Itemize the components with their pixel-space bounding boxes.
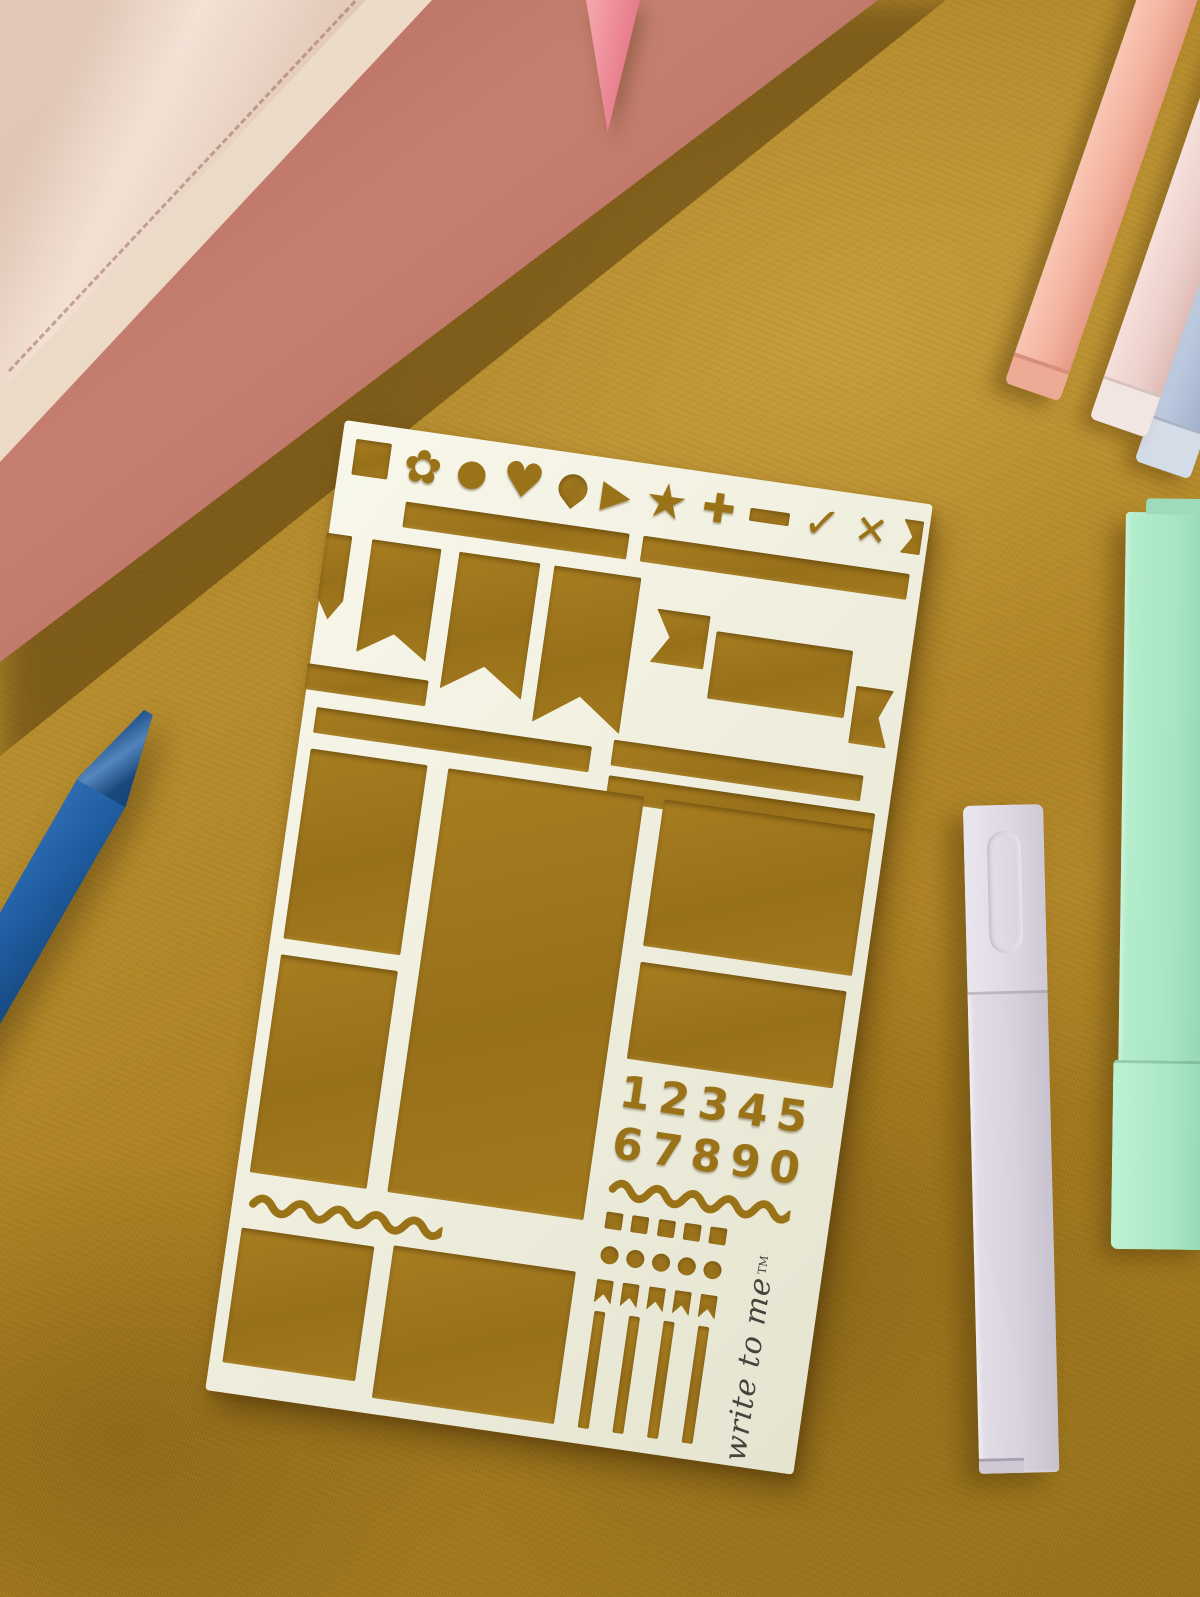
photo-stage: ✿ ● ♥ ▶ ★ ✚ ✓ ✕ <box>0 0 1200 1597</box>
square-icon <box>351 439 392 480</box>
balloon-pin-icon <box>553 468 594 509</box>
pennant-banner-medium <box>440 552 541 700</box>
dot-icon <box>651 1253 671 1273</box>
mini-flag-icon <box>620 1282 640 1308</box>
wide-box-cutout <box>643 799 873 976</box>
minus-icon <box>749 507 790 526</box>
cross-icon: ✕ <box>852 509 891 553</box>
mini-squares-row <box>604 1211 727 1245</box>
brand-text: write to me <box>717 1274 778 1463</box>
mini-dots-row <box>599 1245 722 1280</box>
flower-icon: ✿ <box>401 441 446 492</box>
small-box-cutout <box>627 962 847 1089</box>
play-triangle-icon: ▶ <box>599 474 633 516</box>
check-icon: ✓ <box>801 500 844 549</box>
mini-square-icon <box>708 1226 727 1245</box>
square-frame-cutout <box>222 1228 374 1382</box>
dot-icon <box>702 1260 722 1280</box>
circle-icon: ● <box>454 454 490 494</box>
bar-slot <box>304 663 428 706</box>
plus-icon: ✚ <box>699 487 738 531</box>
mint-marker <box>1116 512 1200 1247</box>
mini-flag-icon <box>594 1279 614 1305</box>
mint-marker-cap <box>1111 1060 1200 1250</box>
ribbon-banner-body <box>707 631 853 718</box>
stripe-slot <box>612 1316 640 1434</box>
lilac-marker-grip <box>987 831 1024 954</box>
mini-square-icon <box>682 1223 701 1242</box>
dot-icon <box>599 1245 619 1265</box>
large-box-cutout <box>387 768 644 1220</box>
box-frame-cutout <box>283 748 427 955</box>
star-icon: ★ <box>642 475 691 529</box>
lilac-marker-cap <box>963 804 1048 995</box>
stripe-slot <box>578 1311 606 1429</box>
mini-square-icon <box>604 1211 623 1230</box>
ribbon-left-tail <box>650 608 711 669</box>
box-frame-cutout <box>372 1245 576 1424</box>
pennant-banner-large <box>532 565 642 734</box>
trademark-symbol: TM <box>755 1255 771 1275</box>
pennant-banner-small <box>356 539 442 662</box>
box-frame-cutout <box>250 954 398 1189</box>
dot-icon <box>677 1256 697 1276</box>
mini-square-icon <box>656 1219 675 1238</box>
dot-icon <box>625 1249 645 1269</box>
flag-end-icon <box>900 519 925 556</box>
mini-square-icon <box>630 1215 649 1234</box>
lilac-marker <box>963 804 1059 1474</box>
heart-icon: ♥ <box>498 454 547 508</box>
ribbon-right-tail <box>848 686 894 749</box>
